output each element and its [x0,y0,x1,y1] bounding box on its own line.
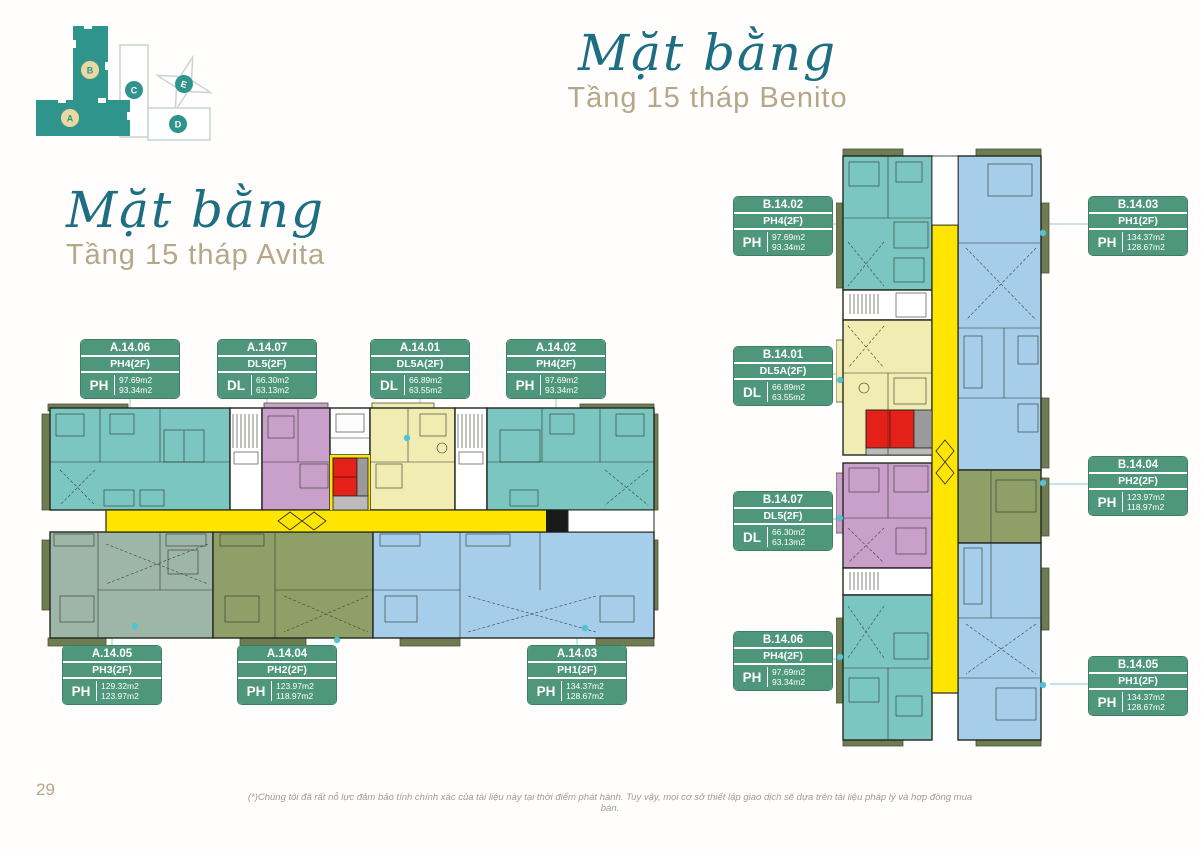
unit-card-b1404: B.14.04 PH2(2F) PH 123.97m2118.97m2 [1089,457,1187,515]
unit-area-net: 128.67m2 [1127,702,1165,712]
unit-area-net: 128.67m2 [1127,242,1165,252]
unit-code: B.14.03 [1089,197,1187,214]
avita-elevator-core [333,458,368,510]
unit-category: DL [737,385,767,400]
site-minimap: B C E A D [28,22,223,147]
benito-floor-plan [836,148,1066,748]
unit-code: B.14.01 [734,347,832,364]
unit-area-net: 128.67m2 [566,691,604,701]
unit-category: PH [241,684,271,699]
unit-area-b1402 [843,156,932,290]
unit-type: PH1(2F) [1089,214,1187,230]
minimap-tower-d: D [148,108,210,140]
unit-area-a1402 [487,408,654,510]
unit-area-b1404 [958,470,1041,543]
unit-card-b1402: B.14.02 PH4(2F) PH 97.69m293.34m2 [734,197,832,255]
unit-area-net: 63.13m2 [772,537,805,547]
unit-area-net: 63.13m2 [256,385,289,395]
unit-code: A.14.03 [528,646,626,663]
unit-area-gross: 134.37m2 [1127,692,1165,702]
unit-area-net: 93.34m2 [545,385,578,395]
unit-area-gross: 123.97m2 [1127,492,1165,502]
unit-code: A.14.01 [371,340,469,357]
unit-area-gross: 97.69m2 [772,667,805,677]
unit-area-gross: 66.89m2 [409,375,442,385]
unit-area-gross: 97.69m2 [119,375,152,385]
unit-area-gross: 66.89m2 [772,382,805,392]
unit-areas: PH 97.69m293.34m2 [734,665,832,690]
unit-areas: PH 123.97m2118.97m2 [238,679,336,704]
brochure-page: B C E A D Mặt bằng [0,0,1201,850]
unit-category: PH [737,235,767,250]
unit-type: PH4(2F) [734,649,832,665]
unit-card-a1402: A.14.02 PH4(2F) PH 97.69m293.34m2 [507,340,605,398]
unit-type: DL5(2F) [734,509,832,525]
unit-areas: DL 66.30m263.13m2 [218,373,316,398]
avita-shaft [546,510,568,532]
unit-area-net: 93.34m2 [772,242,805,252]
unit-type: PH4(2F) [507,357,605,373]
unit-category: PH [1092,695,1122,710]
unit-card-b1407: B.14.07 DL5(2F) DL 66.30m263.13m2 [734,492,832,550]
unit-type: PH1(2F) [1089,674,1187,690]
unit-card-a1404: A.14.04 PH2(2F) PH 123.97m2118.97m2 [238,646,336,704]
benito-title-subtitle: Tầng 15 tháp Benito [525,81,890,115]
unit-area-gross: 123.97m2 [276,681,314,691]
unit-category: PH [737,670,767,685]
unit-area-gross: 134.37m2 [566,681,604,691]
unit-code: A.14.06 [81,340,179,357]
benito-title-script: Mặt bằng [525,25,890,81]
unit-category: PH [1092,495,1122,510]
unit-type: PH2(2F) [1089,474,1187,490]
unit-areas: PH 97.69m293.34m2 [734,230,832,255]
unit-type: PH4(2F) [81,357,179,373]
unit-type: PH3(2F) [63,663,161,679]
unit-area-gross: 66.30m2 [772,527,805,537]
unit-card-b1405: B.14.05 PH1(2F) PH 134.37m2128.67m2 [1089,657,1187,715]
minimap-badge-c: C [131,86,138,96]
unit-category: PH [531,684,561,699]
minimap-tower-a: A [36,98,132,136]
unit-area-net: 63.55m2 [409,385,442,395]
unit-area-a1407 [262,408,330,510]
unit-category: DL [374,378,404,393]
unit-code: A.14.02 [507,340,605,357]
unit-areas: DL 66.89m263.55m2 [734,380,832,405]
unit-code: A.14.05 [63,646,161,663]
unit-type: PH1(2F) [528,663,626,679]
unit-card-a1401: A.14.01 DL5A(2F) DL 66.89m263.55m2 [371,340,469,398]
unit-card-a1407: A.14.07 DL5(2F) DL 66.30m263.13m2 [218,340,316,398]
unit-area-net: 118.97m2 [1127,502,1165,512]
disclaimer-text: (*)Chúng tôi đã rất nỗ lực đảm bảo tính … [240,792,980,814]
unit-code: B.14.02 [734,197,832,214]
unit-area-b1405 [958,543,1041,740]
unit-category: PH [66,684,96,699]
unit-area-b1406 [843,595,932,740]
unit-area-net: 93.34m2 [772,677,805,687]
unit-category: PH [84,378,114,393]
unit-areas: PH 134.37m2128.67m2 [1089,690,1187,715]
unit-category: DL [737,530,767,545]
unit-card-b1401: B.14.01 DL5A(2F) DL 66.89m263.55m2 [734,347,832,405]
benito-title: Mặt bằng Tầng 15 tháp Benito [525,25,890,115]
unit-card-b1403: B.14.03 PH1(2F) PH 134.37m2128.67m2 [1089,197,1187,255]
unit-areas: DL 66.89m263.55m2 [371,373,469,398]
unit-area-gross: 97.69m2 [545,375,578,385]
unit-code: B.14.07 [734,492,832,509]
unit-card-a1405: A.14.05 PH3(2F) PH 129.32m2123.97m2 [63,646,161,704]
unit-areas: PH 134.37m2128.67m2 [528,679,626,704]
benito-elevator-core [866,410,932,455]
avita-corridor [106,510,558,532]
unit-code: B.14.05 [1089,657,1187,674]
avita-title-script: Mặt bằng [28,182,363,238]
unit-areas: PH 129.32m2123.97m2 [63,679,161,704]
unit-code: B.14.06 [734,632,832,649]
unit-area-net: 63.55m2 [772,392,805,402]
unit-code: A.14.07 [218,340,316,357]
unit-type: DL5A(2F) [734,364,832,380]
unit-area-gross: 129.32m2 [101,681,139,691]
unit-area-gross: 97.69m2 [772,232,805,242]
benito-stairwell-upper [843,290,932,320]
page-number: 29 [36,780,55,800]
unit-card-a1403: A.14.03 PH1(2F) PH 134.37m2128.67m2 [528,646,626,704]
benito-corridor [932,225,958,693]
minimap-badge-d: D [175,120,182,130]
unit-card-a1406: A.14.06 PH4(2F) PH 97.69m293.34m2 [81,340,179,398]
unit-area-net: 123.97m2 [101,691,139,701]
unit-area-b1407 [843,463,932,568]
unit-area-a1401 [370,408,455,510]
avita-floor-plan [40,400,660,650]
unit-areas: PH 134.37m2128.67m2 [1089,230,1187,255]
unit-code: B.14.04 [1089,457,1187,474]
unit-type: DL5A(2F) [371,357,469,373]
avita-title: Mặt bằng Tầng 15 tháp Avita [28,182,363,272]
unit-area-net: 118.97m2 [276,691,314,701]
unit-area-gross: 134.37m2 [1127,232,1165,242]
unit-type: PH2(2F) [238,663,336,679]
minimap-badge-a: A [67,114,74,124]
unit-card-b1406: B.14.06 PH4(2F) PH 97.69m293.34m2 [734,632,832,690]
unit-areas: PH 97.69m293.34m2 [507,373,605,398]
unit-category: PH [1092,235,1122,250]
avita-title-subtitle: Tầng 15 tháp Avita [28,238,363,272]
unit-area-net: 93.34m2 [119,385,152,395]
unit-code: A.14.04 [238,646,336,663]
unit-category: DL [221,378,251,393]
benito-stairwell-lower [843,568,932,595]
unit-type: PH4(2F) [734,214,832,230]
unit-area-b1403 [958,156,1041,470]
unit-area-gross: 66.30m2 [256,375,289,385]
minimap-badge-b: B [87,66,94,76]
unit-type: DL5(2F) [218,357,316,373]
unit-category: PH [510,378,540,393]
unit-areas: PH 97.69m293.34m2 [81,373,179,398]
unit-areas: PH 123.97m2118.97m2 [1089,490,1187,515]
unit-areas: DL 66.30m263.13m2 [734,525,832,550]
